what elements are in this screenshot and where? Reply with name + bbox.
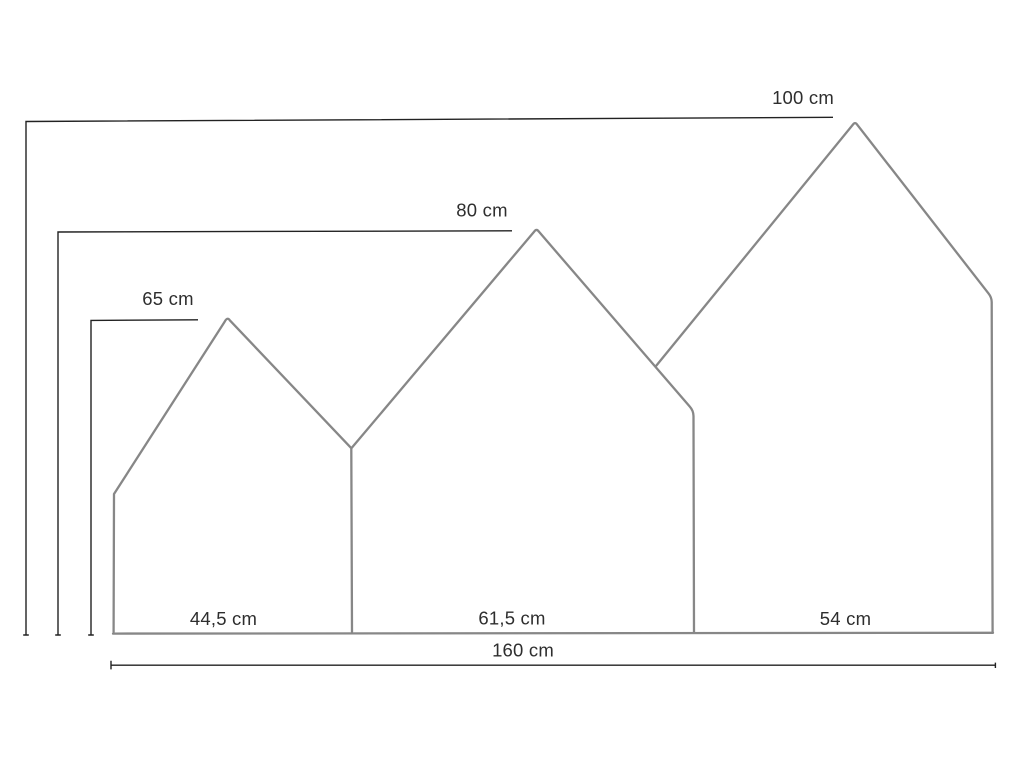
- svg-text:54 cm: 54 cm: [820, 608, 871, 629]
- svg-text:65 cm: 65 cm: [142, 288, 193, 309]
- svg-text:80 cm: 80 cm: [456, 200, 507, 221]
- svg-text:160 cm: 160 cm: [492, 640, 554, 661]
- svg-text:100 cm: 100 cm: [772, 87, 834, 108]
- svg-text:61,5 cm: 61,5 cm: [478, 608, 545, 629]
- svg-text:44,5 cm: 44,5 cm: [190, 608, 257, 629]
